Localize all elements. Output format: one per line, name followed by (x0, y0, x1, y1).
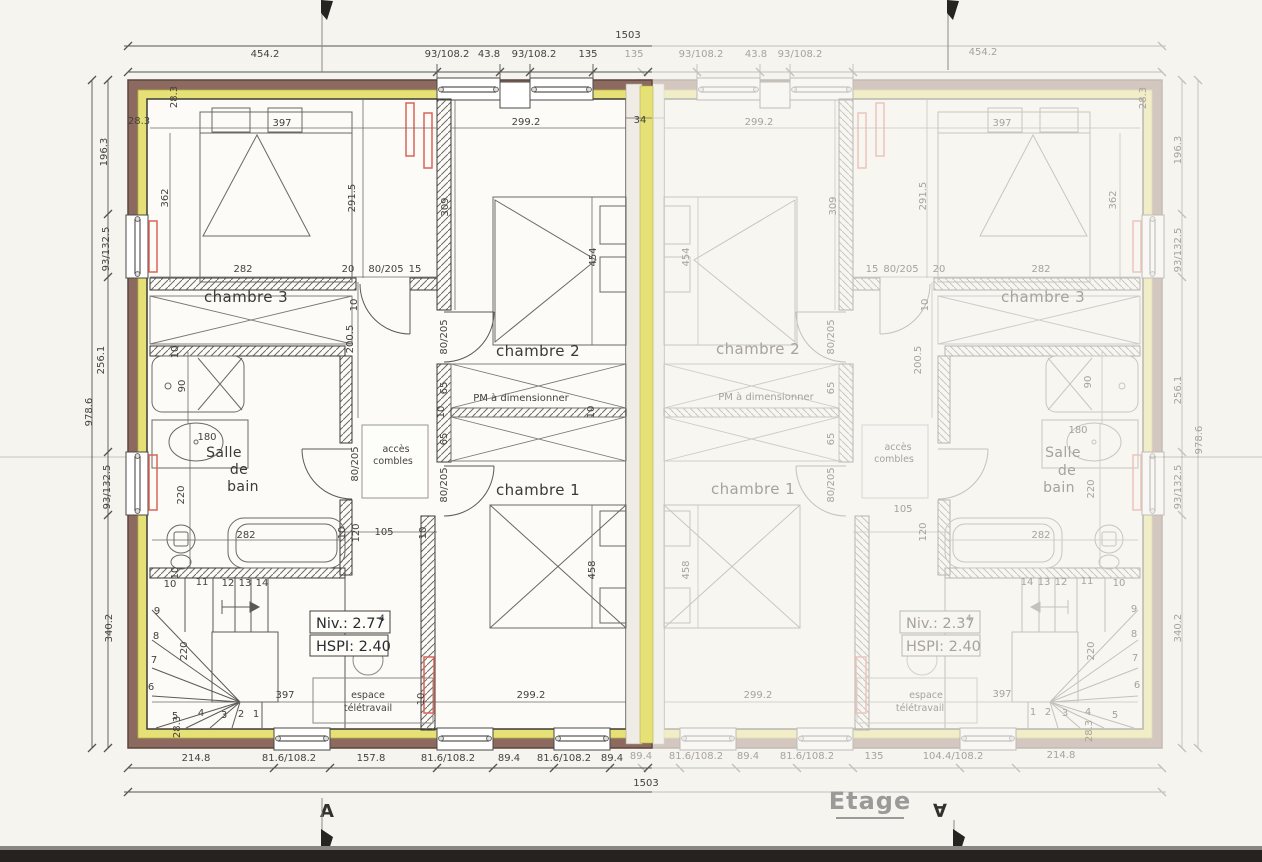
dim-label: 105 (374, 527, 393, 538)
dim-label: 282 (236, 530, 255, 541)
dim-label: 10 (586, 406, 597, 419)
dim-label: 28.3 (1084, 720, 1095, 742)
dim-label: 93/108.2 (425, 49, 470, 60)
dim-label: 81.6/108.2 (421, 753, 475, 764)
dim-label: 282 (1031, 530, 1050, 541)
label-acces-combles: combles (874, 454, 914, 465)
level-value: Niv.: 2.77 (316, 616, 385, 632)
dim-label: 34 (634, 115, 647, 126)
room-label-salle-de-bain: Salle (1045, 445, 1081, 461)
dim-label: 397 (992, 689, 1011, 700)
stair-step-number: 2 (1045, 707, 1051, 718)
dim-label: 120 (351, 523, 362, 542)
dim-label-overall-width: 1503 (633, 778, 658, 789)
dim-label: 80/205 (368, 264, 403, 275)
stair-step-number: 14 (1021, 577, 1034, 588)
dim-label: 299.2 (512, 117, 541, 128)
dim-label: 256.1 (1173, 376, 1184, 405)
dim-label: 80/205 (350, 446, 361, 481)
dim-label: 340.2 (1173, 614, 1184, 643)
dim-label: 80/205 (826, 319, 837, 354)
dim-label: 105 (893, 504, 912, 515)
dim-label: 458 (587, 560, 598, 579)
room-label-salle-de-bain: bain (227, 479, 259, 495)
dim-label: 220 (176, 485, 187, 504)
stair-step-number: 11 (1081, 576, 1094, 587)
dim-label: 397 (272, 118, 291, 129)
dim-label: 28.3 (128, 116, 150, 127)
dim-label: 291.5 (347, 184, 358, 213)
stair-step-number: 13 (239, 578, 252, 589)
dim-label: 80/205 (439, 319, 450, 354)
label-pm-a-dimensionner: PM à dimensionner (473, 392, 569, 404)
stair-step-number: 3 (221, 710, 227, 721)
dim-label: 291.5 (918, 182, 929, 211)
dim-label: 10 (170, 346, 181, 359)
dim-label: 120 (918, 522, 929, 541)
stair-step-number: 6 (1134, 680, 1140, 691)
label-pm-a-dimensionner: PM à dimensionner (718, 391, 814, 403)
dim-label: 135 (624, 49, 643, 60)
label-acces-combles: accès (382, 444, 409, 455)
plan-title: Etage (829, 787, 912, 815)
stair-step-number: 10 (1113, 578, 1126, 589)
dim-label: 10 (418, 527, 429, 540)
stair-step-number: 10 (164, 579, 177, 590)
dim-label: 299.2 (745, 117, 774, 128)
ceiling-height-value: HSPI: 2.40 (316, 639, 391, 655)
dim-label: 93/132.5 (102, 465, 113, 510)
dim-label: 15 (866, 264, 879, 275)
dim-label: 220 (179, 641, 190, 660)
scan-edge-shadow (0, 846, 1262, 850)
dim-label: 340.2 (104, 614, 115, 643)
right-unit-mirrored (637, 42, 1202, 796)
scan-edge-band (0, 850, 1262, 862)
room-label-salle-de-bain: de (230, 462, 248, 478)
room-label-chambre-1: chambre 1 (496, 481, 580, 499)
room-label-salle-de-bain: Salle (206, 445, 242, 461)
level-value-superscript: 4 (966, 614, 972, 624)
room-label-chambre-2: chambre 2 (716, 340, 800, 358)
dim-label: 81.6/108.2 (262, 753, 316, 764)
dim-label: 135 (864, 751, 883, 762)
dim-label: 10 (337, 527, 348, 540)
dim-label: 89.4 (498, 753, 520, 764)
stair-step-number: 7 (151, 655, 157, 666)
stair-step-number: 12 (222, 578, 235, 589)
dim-label: 157.8 (357, 753, 386, 764)
left-unit (88, 42, 653, 796)
dim-label: 196.3 (99, 138, 110, 167)
stair-step-number: 8 (1131, 629, 1137, 640)
room-label-chambre-1: chambre 1 (711, 480, 795, 498)
stair-step-number: 11 (196, 577, 209, 588)
room-label-salle-de-bain: de (1058, 463, 1076, 479)
room-label-chambre-3: chambre 3 (204, 288, 288, 306)
dim-label: 397 (275, 690, 294, 701)
dim-label: 454 (681, 247, 692, 266)
stair-step-number: 5 (172, 711, 178, 722)
dim-label: 10 (349, 299, 360, 312)
dim-label: 10 (436, 406, 447, 419)
dim-label: 196.3 (1173, 136, 1184, 165)
dim-label: 80/205 (826, 467, 837, 502)
dim-label: 10 (170, 567, 181, 580)
stair-step-number: 8 (153, 631, 159, 642)
dim-label-overall-height: 978.6 (1194, 426, 1205, 455)
dim-label: 299.2 (517, 690, 546, 701)
room-label-chambre-2: chambre 2 (496, 342, 580, 360)
stair-step-number: 5 (1112, 710, 1118, 721)
dim-label: 89.4 (601, 753, 623, 764)
dim-label: 65 (439, 382, 450, 395)
dim-label: 81.6/108.2 (669, 751, 723, 762)
dim-label-overall-width: 1503 (615, 30, 640, 41)
dim-label: 65 (826, 433, 837, 446)
dim-label: 10 (416, 693, 427, 706)
label-espace-teletravail: espace (351, 690, 385, 701)
stair-step-number: 14 (256, 578, 269, 589)
dim-label: 93/108.2 (679, 49, 724, 60)
dim-label: 80/205 (883, 264, 918, 275)
dim-label-overall-height: 978.6 (84, 398, 95, 427)
dim-label: 309 (440, 197, 451, 216)
dim-label: 28.3 (1138, 87, 1149, 109)
dim-label: 282 (1031, 264, 1050, 275)
stair-step-number: 2 (238, 709, 244, 720)
dim-label: 200.5 (345, 325, 356, 354)
dim-label: 180 (1068, 425, 1087, 436)
stair-step-number: 7 (1132, 653, 1138, 664)
dim-label: 220 (1086, 641, 1097, 660)
dim-label: 256.1 (96, 346, 107, 375)
ceiling-height-value: HSPI: 2.40 (906, 639, 981, 655)
stair-step-number: 6 (148, 682, 154, 693)
stair-step-number: 13 (1038, 577, 1051, 588)
dim-label: 454 (588, 247, 599, 266)
stair-step-number: 1 (1030, 707, 1036, 718)
stair-step-number: 12 (1055, 577, 1068, 588)
dim-label: 80/205 (439, 467, 450, 502)
dim-label: 65 (826, 382, 837, 395)
dim-label: 214.8 (182, 753, 211, 764)
dim-label: 93/132.5 (1173, 228, 1184, 273)
section-letter-a-inverted: ∀ (933, 801, 947, 822)
label-acces-combles: accès (884, 442, 911, 453)
label-acces-combles: combles (373, 456, 413, 467)
dim-label: 89.4 (737, 751, 759, 762)
dim-label: 220 (1086, 479, 1097, 498)
dim-label: 81.6/108.2 (537, 753, 591, 764)
dim-label: 309 (828, 196, 839, 215)
floor-plan-scan: 1503 1503 978.6 978.6 454.2 93/108.2 43.… (0, 0, 1262, 862)
dim-label: 299.2 (744, 690, 773, 701)
dim-label: 43.8 (478, 49, 500, 60)
dim-label: 362 (160, 188, 171, 207)
dim-label: 200.5 (913, 346, 924, 375)
stair-step-number: 9 (154, 606, 160, 617)
dim-label: 20 (933, 264, 946, 275)
dim-label: 397 (992, 118, 1011, 129)
label-espace-teletravail: télétravail (344, 703, 392, 714)
dim-label: 93/132.5 (101, 227, 112, 272)
dim-label: 282 (233, 264, 252, 275)
dim-label: 214.8 (1047, 750, 1076, 761)
stair-step-number: 1 (253, 709, 259, 720)
dim-label: 65 (439, 433, 450, 446)
room-label-chambre-3: chambre 3 (1001, 288, 1085, 306)
dim-label: 180 (197, 432, 216, 443)
dim-label: 93/108.2 (778, 49, 823, 60)
dim-label: 90 (177, 380, 188, 393)
stair-step-number: 3 (1062, 708, 1068, 719)
dim-label: 81.6/108.2 (780, 751, 834, 762)
stair-step-number: 9 (1131, 604, 1137, 615)
floor-plan-drawing: 1503 1503 978.6 978.6 454.2 93/108.2 43.… (0, 0, 1262, 862)
dim-label: 43.8 (745, 49, 767, 60)
dim-label: 93/108.2 (512, 49, 557, 60)
dim-label: 28.3 (169, 86, 180, 108)
dim-label: 93/132.5 (1173, 465, 1184, 510)
stair-step-number: 4 (198, 708, 204, 719)
label-espace-teletravail: espace (909, 690, 943, 701)
dim-label: 362 (1108, 190, 1119, 209)
dim-label: 104.4/108.2 (923, 751, 984, 762)
room-label-salle-de-bain: bain (1043, 480, 1075, 496)
level-value: Niv.: 2.37 (906, 616, 975, 632)
dim-label: 135 (578, 49, 597, 60)
level-value-superscript: 4 (379, 614, 385, 624)
dim-label: 89.4 (630, 751, 652, 762)
dim-label: 454.2 (969, 47, 998, 58)
dim-label: 454.2 (251, 49, 280, 60)
dim-label: 20 (342, 264, 355, 275)
stair-step-number: 4 (1085, 707, 1091, 718)
dim-label: 90 (1083, 376, 1094, 389)
label-espace-teletravail: télétravail (896, 703, 944, 714)
dim-label: 10 (920, 299, 931, 312)
dim-label: 458 (681, 560, 692, 579)
dim-label: 15 (409, 264, 422, 275)
